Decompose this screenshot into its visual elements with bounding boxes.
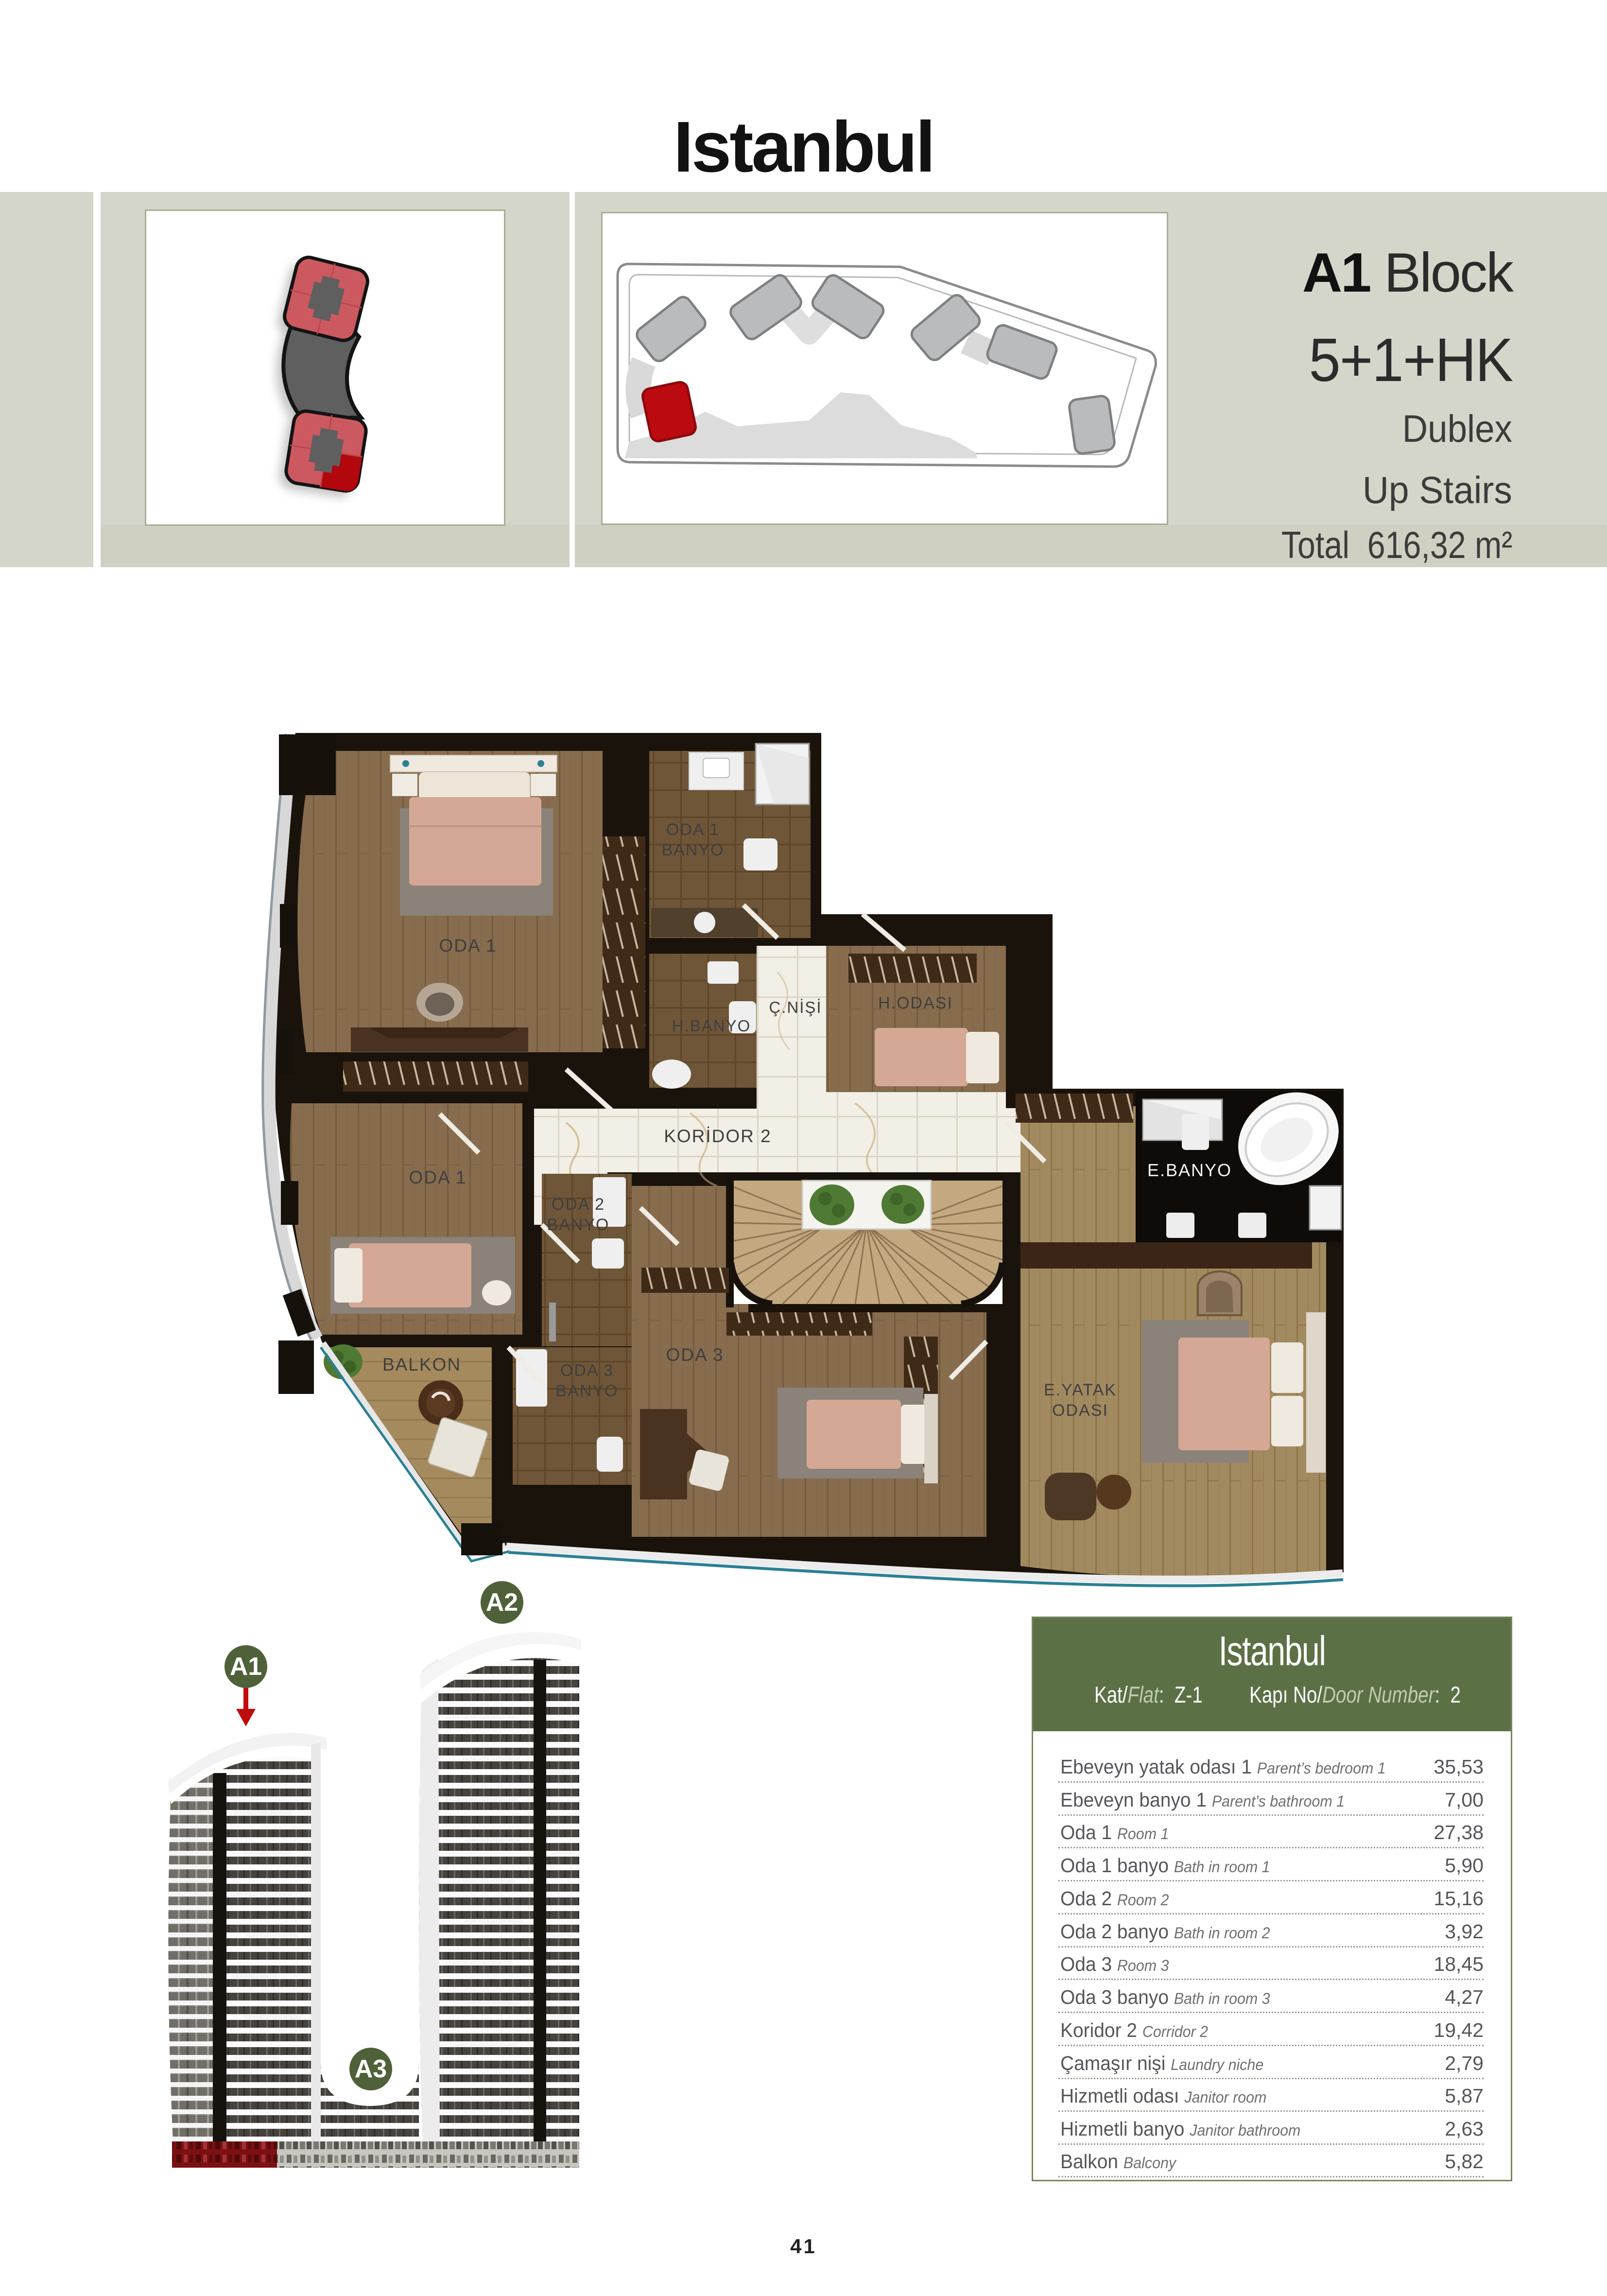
svg-text:ODA 1: ODA 1	[439, 936, 497, 956]
svg-text:BALKON: BALKON	[382, 1355, 461, 1374]
svg-text:Ç.NİŞİ: Ç.NİŞİ	[769, 998, 822, 1016]
svg-text:H.BANYO: H.BANYO	[672, 1017, 751, 1035]
svg-text:ODASI: ODASI	[1052, 1401, 1108, 1420]
svg-text:E.YATAK: E.YATAK	[1044, 1381, 1117, 1399]
svg-text:BANYO: BANYO	[547, 1216, 609, 1234]
svg-text:BANYO: BANYO	[661, 841, 724, 859]
svg-text:ODA 1: ODA 1	[409, 1167, 467, 1187]
svg-text:BANYO: BANYO	[555, 1382, 618, 1400]
svg-text:ODA 1: ODA 1	[666, 820, 720, 839]
svg-text:ODA 3: ODA 3	[560, 1361, 614, 1380]
svg-text:ODA 3: ODA 3	[666, 1345, 724, 1365]
svg-text:ODA 2: ODA 2	[552, 1195, 605, 1214]
svg-text:KORİDOR 2: KORİDOR 2	[664, 1126, 772, 1146]
svg-text:H.ODASI: H.ODASI	[878, 994, 953, 1012]
svg-text:E.BANYO: E.BANYO	[1147, 1160, 1232, 1180]
